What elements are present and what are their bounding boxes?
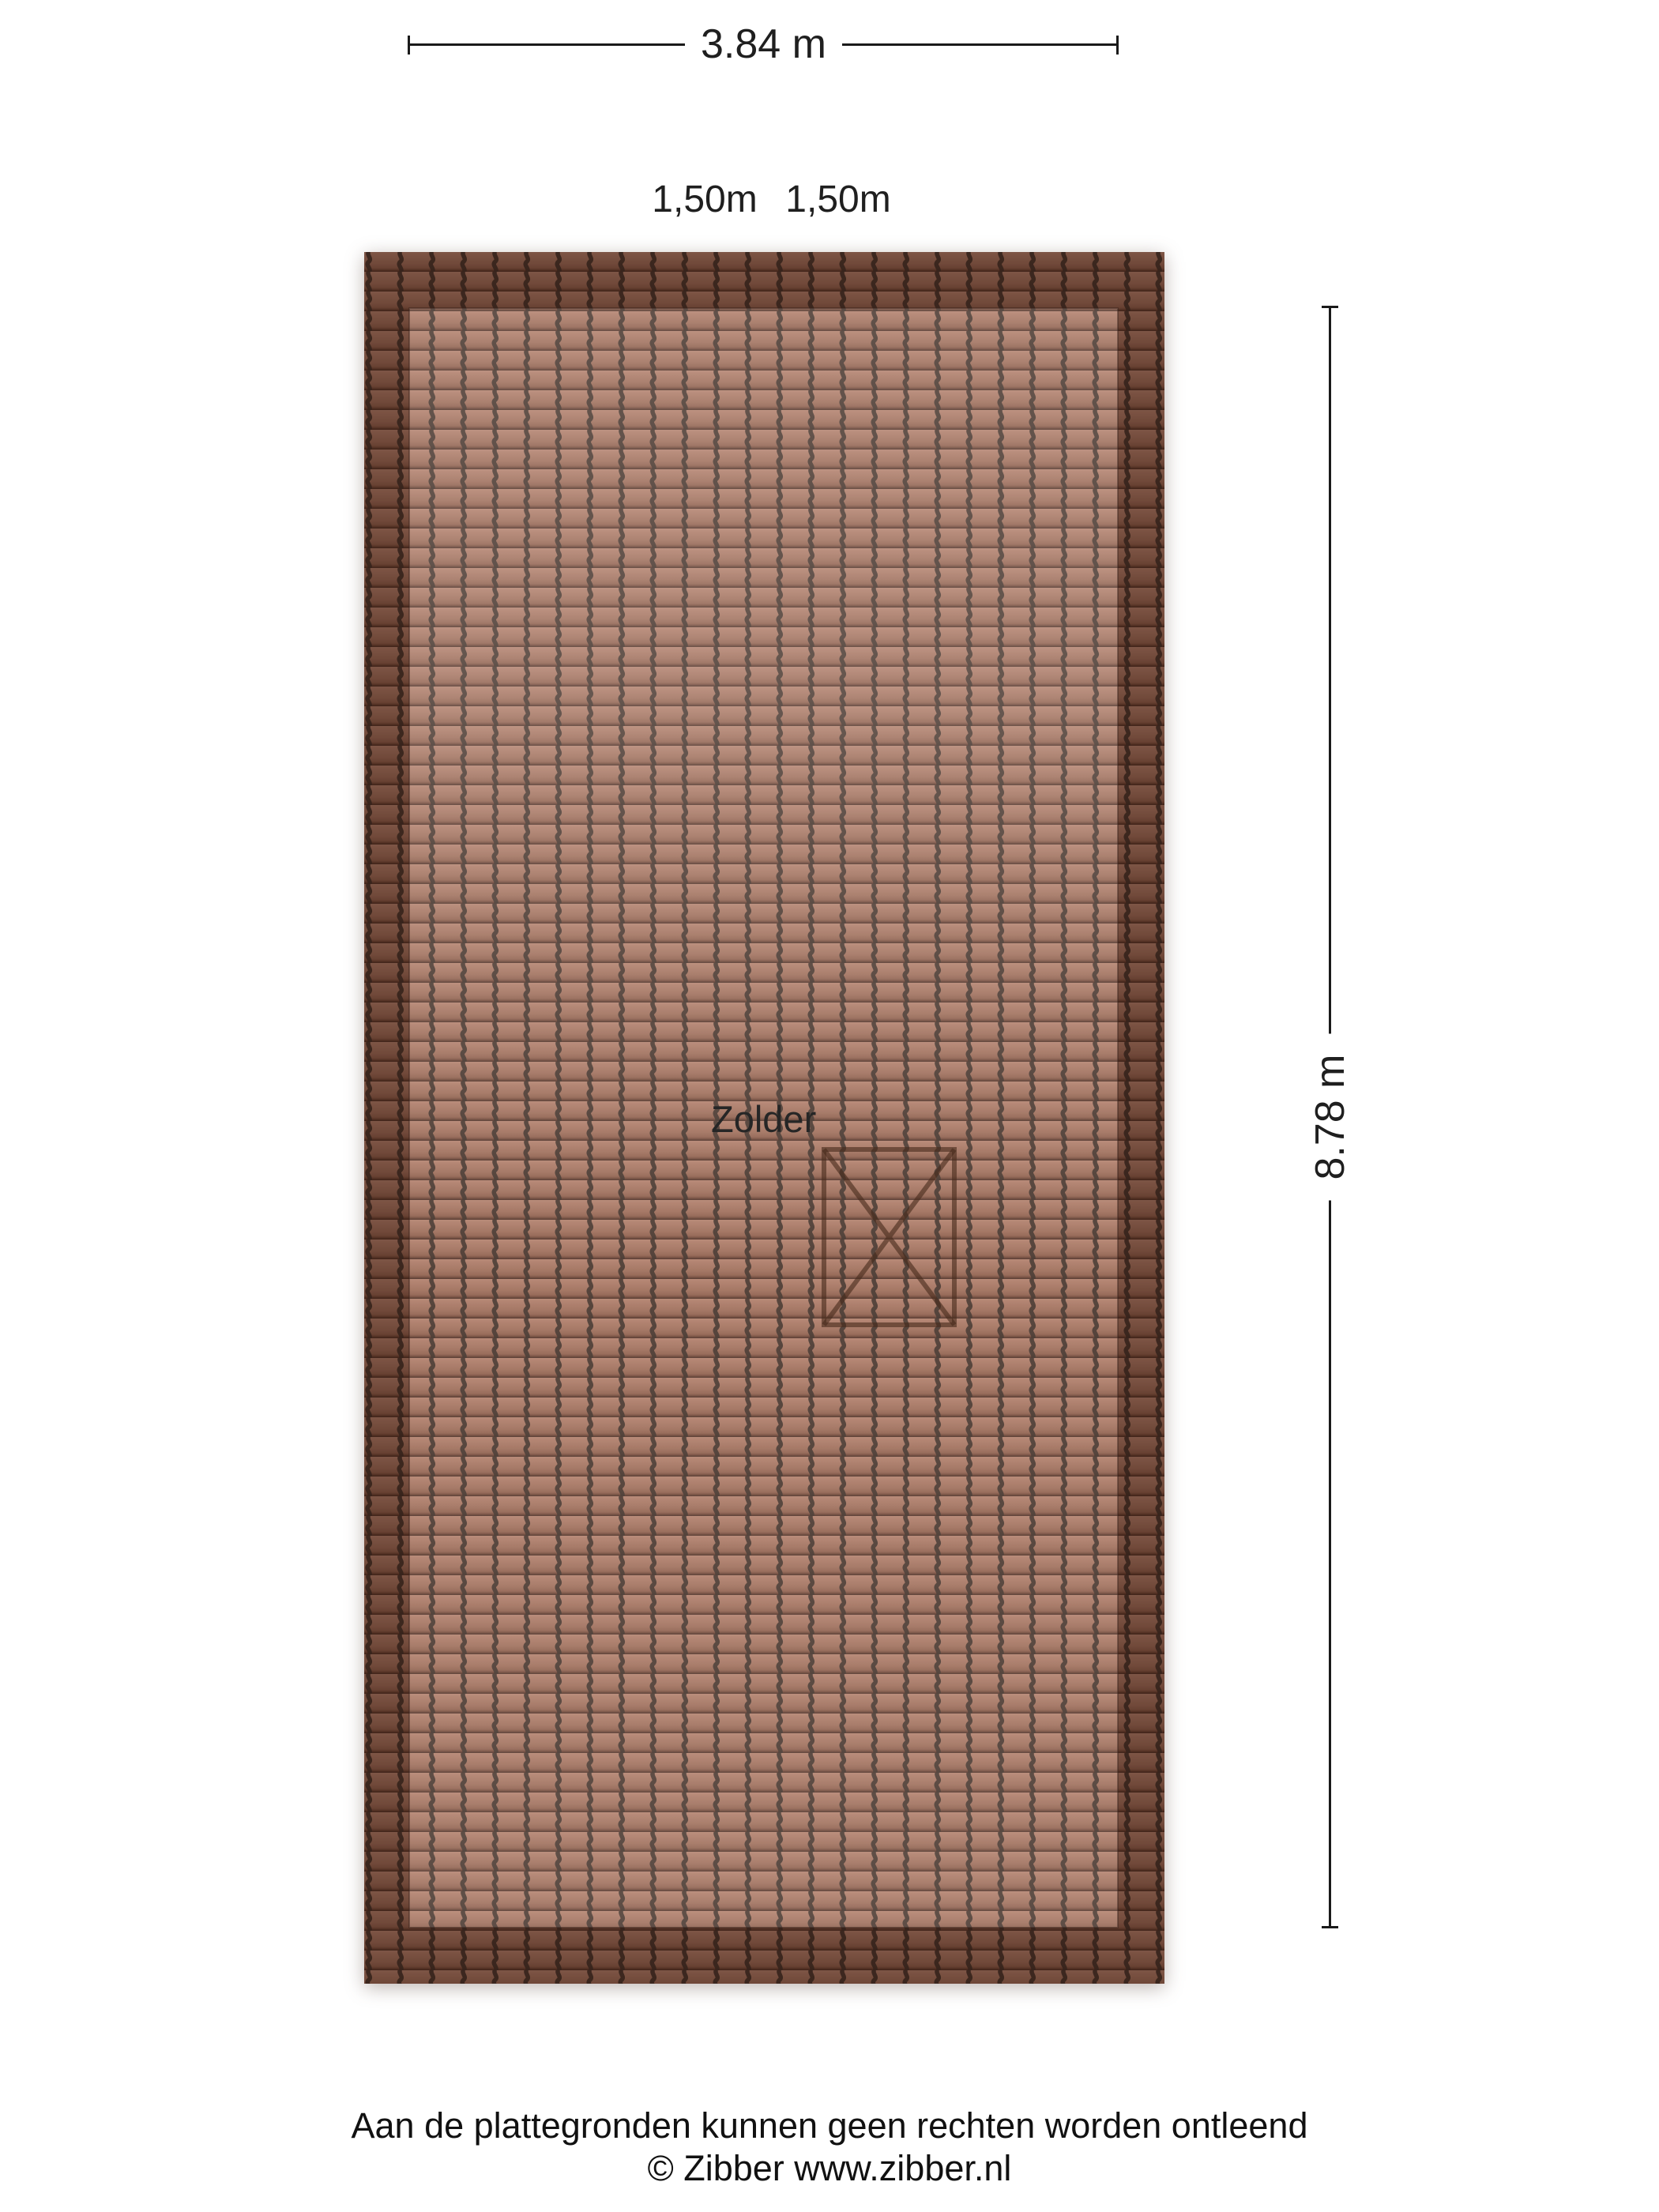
section-label-right: 1,50m [785,179,890,221]
section-label-left: 1,50m [652,179,757,221]
footer-copyright: © Zibber www.zibber.nl [0,2147,1659,2190]
height-dimension-tick-top [1322,306,1338,308]
height-dimension-label: 8.78 m [1307,1034,1354,1201]
floorplan-canvas: 3.84 m 1,50m 1,50m [0,0,1659,2212]
width-dimension-label: 3.84 m [685,21,842,67]
width-dimension-label-wrap: 3.84 m [409,21,1118,68]
room-label: Zolder [711,1100,816,1139]
height-dimension-tick-bottom [1322,1926,1338,1928]
footer-disclaimer: Aan de plattegronden kunnen geen rechten… [0,2105,1659,2147]
